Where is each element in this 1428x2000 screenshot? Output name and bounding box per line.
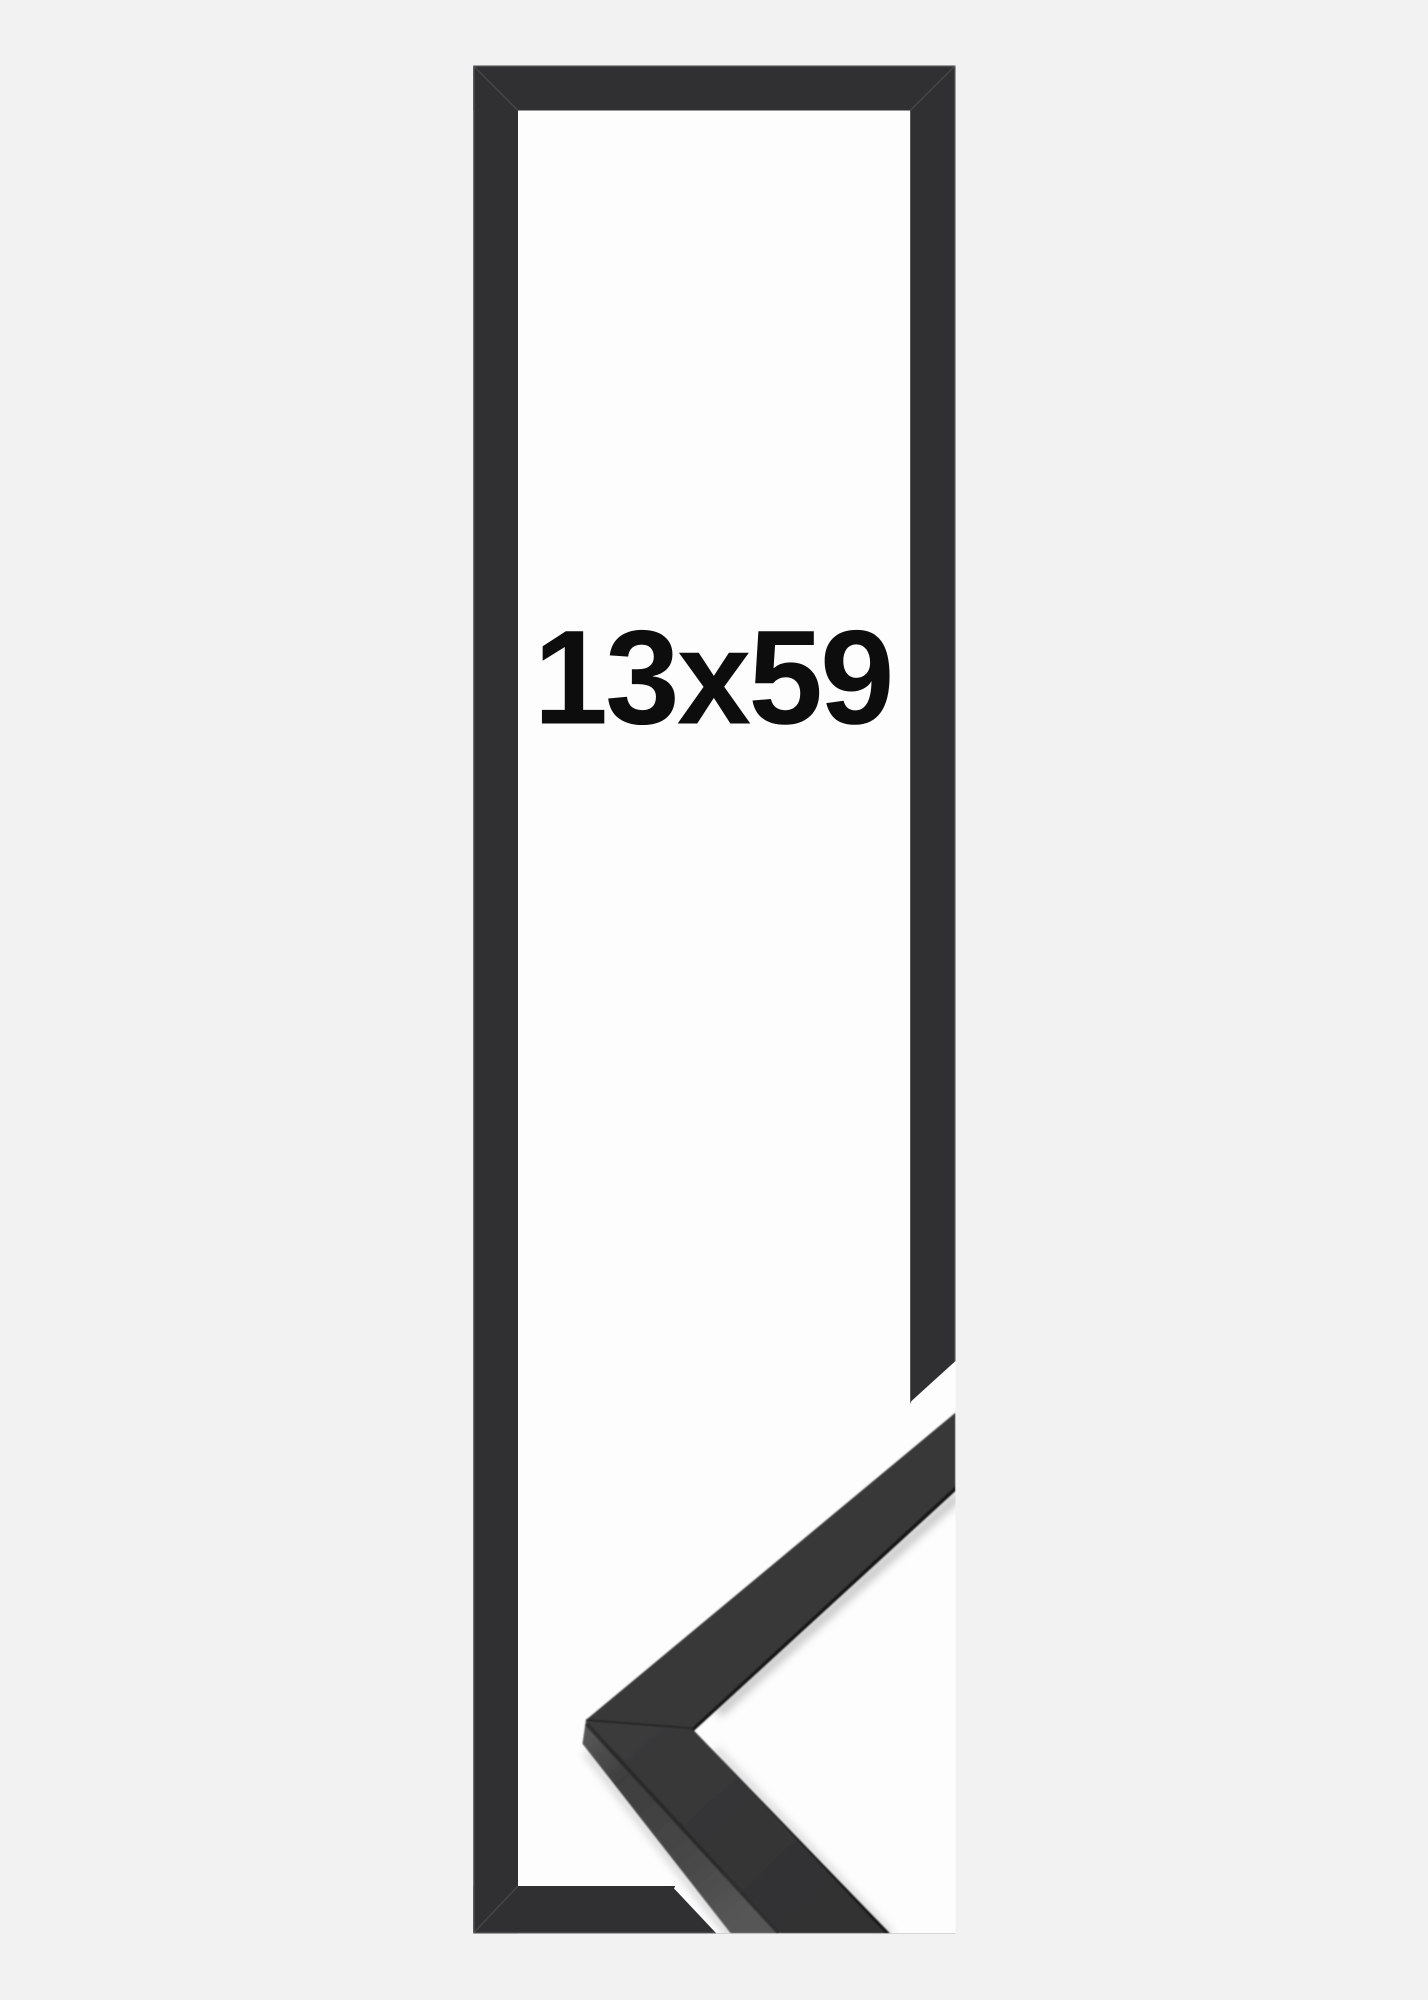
svg-text:13x59: 13x59 (534, 604, 892, 753)
